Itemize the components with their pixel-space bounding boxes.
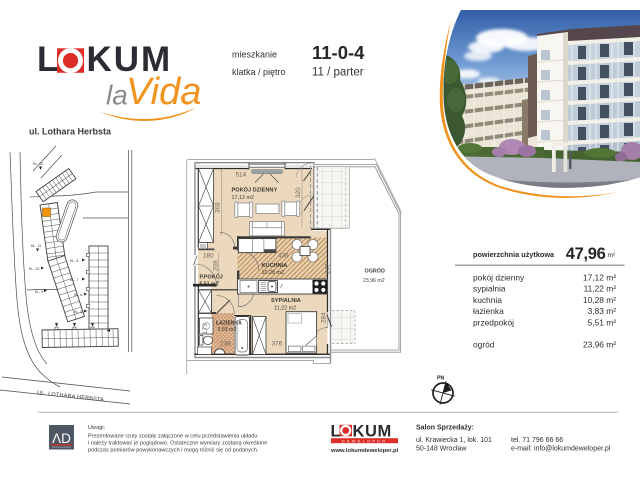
svg-text:łazienka: łazienka xyxy=(473,306,504,316)
svg-text:mieszkanie: mieszkanie xyxy=(232,50,277,60)
svg-text:284: 284 xyxy=(321,312,328,323)
svg-text:KL. 11: KL. 11 xyxy=(31,244,41,248)
svg-text:Vida: Vida xyxy=(126,71,201,113)
svg-text:KL. 12: KL. 12 xyxy=(33,162,43,166)
svg-text:pokój dzienny: pokój dzienny xyxy=(473,272,525,282)
svg-text:208: 208 xyxy=(213,260,220,271)
svg-text:376: 376 xyxy=(272,341,283,348)
svg-text:ΛD: ΛD xyxy=(52,431,71,446)
svg-text:i należy traktować je poglądow: i należy traktować je poglądowo. Ostatec… xyxy=(88,441,267,447)
svg-text:10,28 m²: 10,28 m² xyxy=(583,295,616,305)
svg-text:L: L xyxy=(37,40,58,79)
svg-text:kuchnia: kuchnia xyxy=(473,295,502,305)
svg-text:KL. 9: KL. 9 xyxy=(35,290,43,294)
svg-text:m²: m² xyxy=(608,252,616,259)
svg-text:KUCHNIA: KUCHNIA xyxy=(262,263,288,269)
svg-text:DEWELOPER: DEWELOPER xyxy=(342,438,387,443)
svg-text:11,22 m²: 11,22 m² xyxy=(584,284,617,294)
svg-text:17,12 m²: 17,12 m² xyxy=(583,272,616,282)
svg-text:Uwagi:: Uwagi: xyxy=(88,425,106,431)
svg-text:tel. 71 796 66 66: tel. 71 796 66 66 xyxy=(511,437,563,444)
svg-text:368: 368 xyxy=(215,202,222,213)
svg-text:173: 173 xyxy=(202,323,209,334)
svg-text:przedpokój: przedpokój xyxy=(473,318,514,328)
svg-text:11-0-4: 11-0-4 xyxy=(312,42,365,63)
svg-text:238: 238 xyxy=(220,341,231,348)
svg-text:KL. 6: KL. 6 xyxy=(74,293,82,297)
svg-text:247: 247 xyxy=(325,263,332,274)
svg-text:PN: PN xyxy=(437,376,444,382)
svg-text:L: L xyxy=(331,423,341,441)
svg-text:ul. Krawiecka 1, lok. 101: ul. Krawiecka 1, lok. 101 xyxy=(416,437,492,444)
svg-text:SYPIALNIA: SYPIALNIA xyxy=(271,298,301,304)
svg-text:5,51 m2: 5,51 m2 xyxy=(200,282,219,288)
svg-text:powierzchnia użytkowa: powierzchnia użytkowa xyxy=(473,250,555,259)
svg-text:Salon Sprzedaży:: Salon Sprzedaży: xyxy=(416,425,474,432)
svg-text:514: 514 xyxy=(236,172,247,179)
svg-text:11 / parter: 11 / parter xyxy=(312,67,364,79)
svg-text:10,28 m2: 10,28 m2 xyxy=(262,270,284,276)
svg-text:50-148 Wrocław: 50-148 Wrocław xyxy=(416,446,467,453)
svg-text:e-mail: info@lokumdeweloper.pl: e-mail: info@lokumdeweloper.pl xyxy=(511,446,611,453)
svg-text:ul. Lothara Herbsta: ul. Lothara Herbsta xyxy=(29,127,112,137)
svg-text:47,96: 47,96 xyxy=(566,245,606,263)
svg-text:3,83 m2: 3,83 m2 xyxy=(218,327,237,333)
svg-text:5,51 m²: 5,51 m² xyxy=(588,318,617,328)
svg-text:klatka / piętro: klatka / piętro xyxy=(232,67,286,77)
svg-text:23,96 m2: 23,96 m2 xyxy=(363,278,385,284)
svg-text:KL. 8: KL. 8 xyxy=(70,259,78,263)
svg-text:180: 180 xyxy=(203,253,214,260)
svg-text:POKÓJ DZIENNY: POKÓJ DZIENNY xyxy=(232,186,278,194)
svg-text:KL. 5: KL. 5 xyxy=(74,310,82,314)
svg-text:11,22 m2: 11,22 m2 xyxy=(274,306,296,312)
svg-text:23,96 m²: 23,96 m² xyxy=(583,340,616,350)
svg-text:sypialnia: sypialnia xyxy=(473,284,506,294)
svg-text:KL. 10: KL. 10 xyxy=(29,267,39,271)
svg-text:la: la xyxy=(106,80,128,111)
svg-text:320: 320 xyxy=(295,187,302,198)
svg-text:3,83 m²: 3,83 m² xyxy=(588,306,617,316)
svg-text:podczas pomiarów powykonawczyc: podczas pomiarów powykonawczych i mogą r… xyxy=(88,448,259,454)
svg-text:ogród: ogród xyxy=(473,340,495,350)
svg-text:17,12 m2: 17,12 m2 xyxy=(232,195,254,201)
svg-text:ŁAZIENKA: ŁAZIENKA xyxy=(216,321,242,327)
svg-text:436: 436 xyxy=(278,253,289,260)
svg-text:Prezentowane rzuty zostały zał: Prezentowane rzuty zostały załączone w c… xyxy=(88,433,257,439)
svg-text:P.POKÓJ: P.POKÓJ xyxy=(200,273,223,281)
svg-text:www.lokumdeweloper.pl: www.lokumdeweloper.pl xyxy=(330,448,398,454)
svg-text:KL. 7: KL. 7 xyxy=(70,278,78,282)
svg-text:OGRÓD: OGRÓD xyxy=(365,267,385,275)
